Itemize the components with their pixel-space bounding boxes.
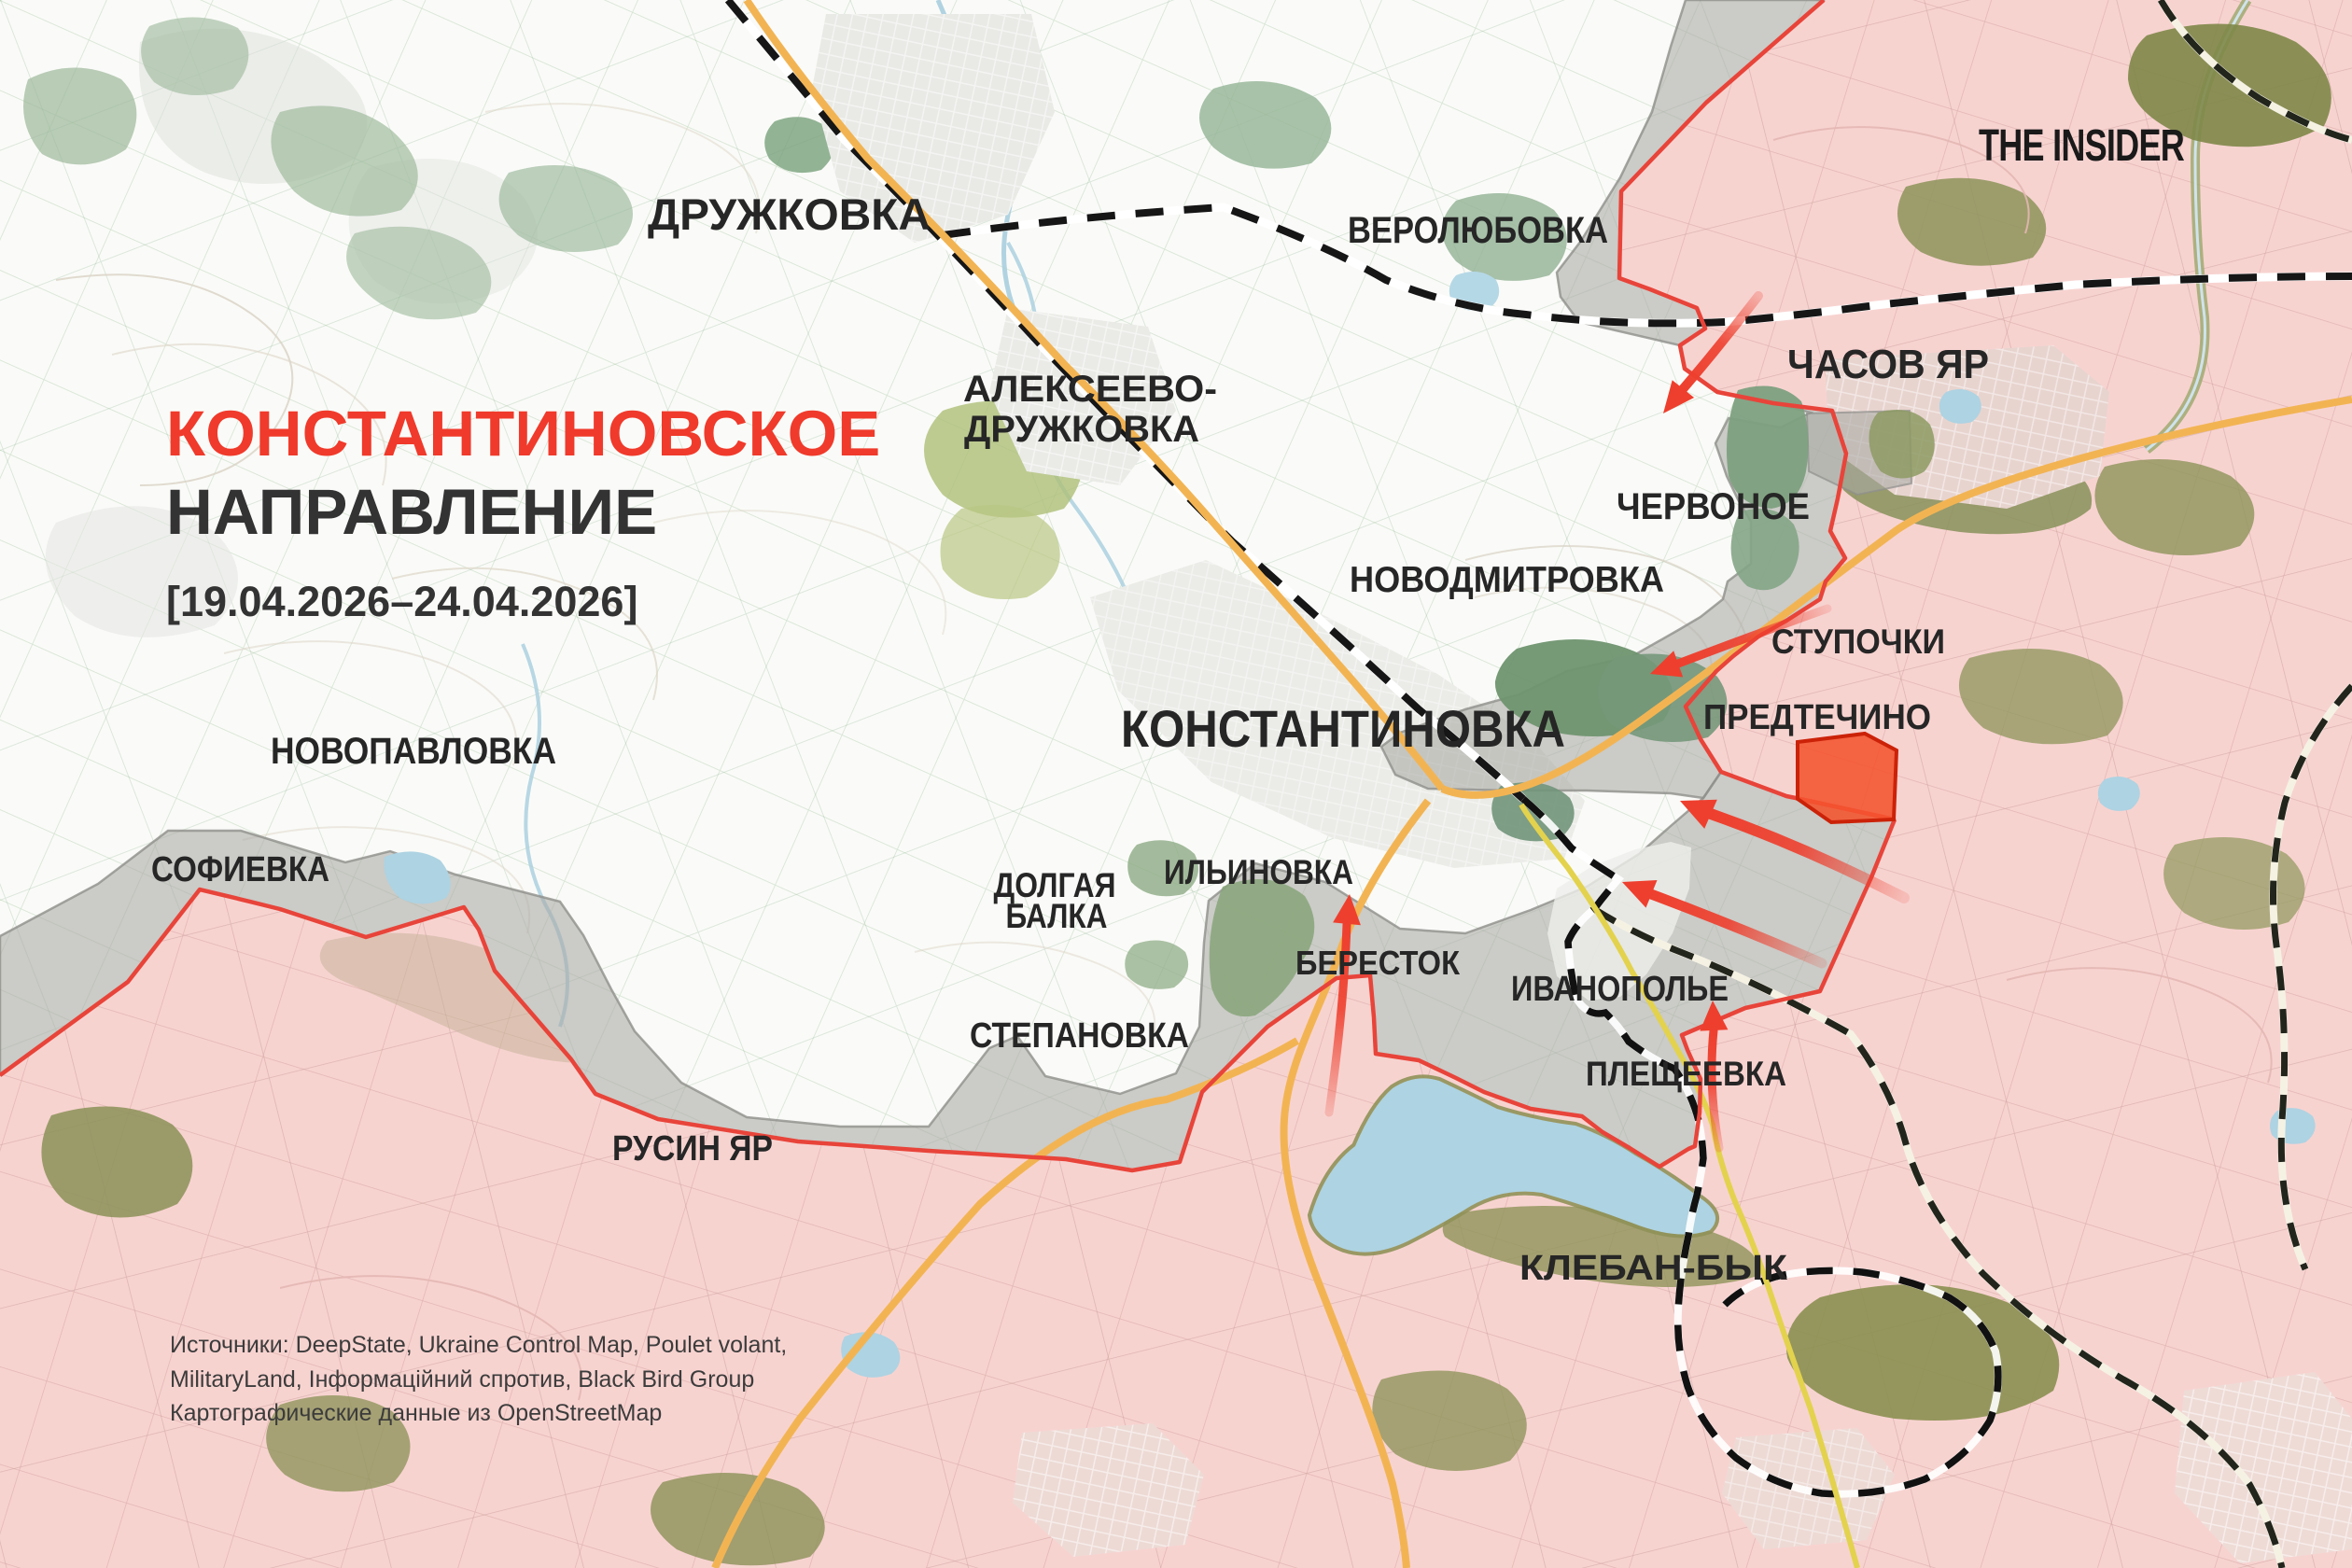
svg-text:КЛЕБАН-БЫК: КЛЕБАН-БЫК	[1519, 1249, 1788, 1288]
svg-text:MilitaryLand, Інформаційний сп: MilitaryLand, Інформаційний спротив, Bla…	[170, 1366, 754, 1393]
svg-text:СОФИЕВКА: СОФИЕВКА	[151, 850, 329, 889]
svg-text:БАЛКА: БАЛКА	[1006, 897, 1108, 935]
svg-text:ВЕРОЛЮБОВКА: ВЕРОЛЮБОВКА	[1348, 210, 1608, 251]
svg-text:ЧАСОВ ЯР: ЧАСОВ ЯР	[1787, 342, 1989, 387]
svg-text:АЛЕКСЕЕВО-: АЛЕКСЕЕВО-	[963, 369, 1217, 410]
svg-text:БЕРЕСТОК: БЕРЕСТОК	[1295, 944, 1461, 982]
svg-text:СТЕПАНОВКА: СТЕПАНОВКА	[970, 1016, 1189, 1056]
svg-text:НОВОПАВЛОВКА: НОВОПАВЛОВКА	[271, 731, 556, 772]
svg-text:ПРЕДТЕЧИНО: ПРЕДТЕЧИНО	[1703, 698, 1931, 737]
svg-text:КОНСТАНТИНОВКА: КОНСТАНТИНОВКА	[1121, 699, 1565, 758]
svg-text:[19.04.2026–24.04.2026]: [19.04.2026–24.04.2026]	[166, 578, 637, 625]
svg-text:КОНСТАНТИНОВСКОЕ: КОНСТАНТИНОВСКОЕ	[166, 398, 880, 469]
svg-text:НАПРАВЛЕНИЕ: НАПРАВЛЕНИЕ	[166, 476, 657, 548]
svg-text:НОВОДМИТРОВКА: НОВОДМИТРОВКА	[1350, 560, 1664, 600]
svg-text:Источники: DeepState, Ukraine: Источники: DeepState, Ukraine Control Ma…	[170, 1332, 787, 1358]
svg-text:ДРУЖКОВКА: ДРУЖКОВКА	[964, 409, 1199, 450]
svg-text:ЧЕРВОНОЕ: ЧЕРВОНОЕ	[1617, 486, 1810, 527]
svg-text:Картографические данные из Ope: Картографические данные из OpenStreetMap	[170, 1400, 662, 1426]
svg-text:СТУПОЧКИ: СТУПОЧКИ	[1771, 623, 1945, 661]
svg-text:ДРУЖКОВКА: ДРУЖКОВКА	[648, 189, 931, 239]
svg-text:THE INSIDER: THE INSIDER	[1979, 121, 2184, 171]
svg-text:РУСИН ЯР: РУСИН ЯР	[612, 1129, 773, 1169]
svg-text:ИВАНОПОЛЬЕ: ИВАНОПОЛЬЕ	[1511, 970, 1729, 1009]
svg-text:ИЛЬИНОВКА: ИЛЬИНОВКА	[1164, 853, 1353, 891]
svg-text:ПЛЕЩЕЕВКА: ПЛЕЩЕЕВКА	[1586, 1055, 1786, 1093]
